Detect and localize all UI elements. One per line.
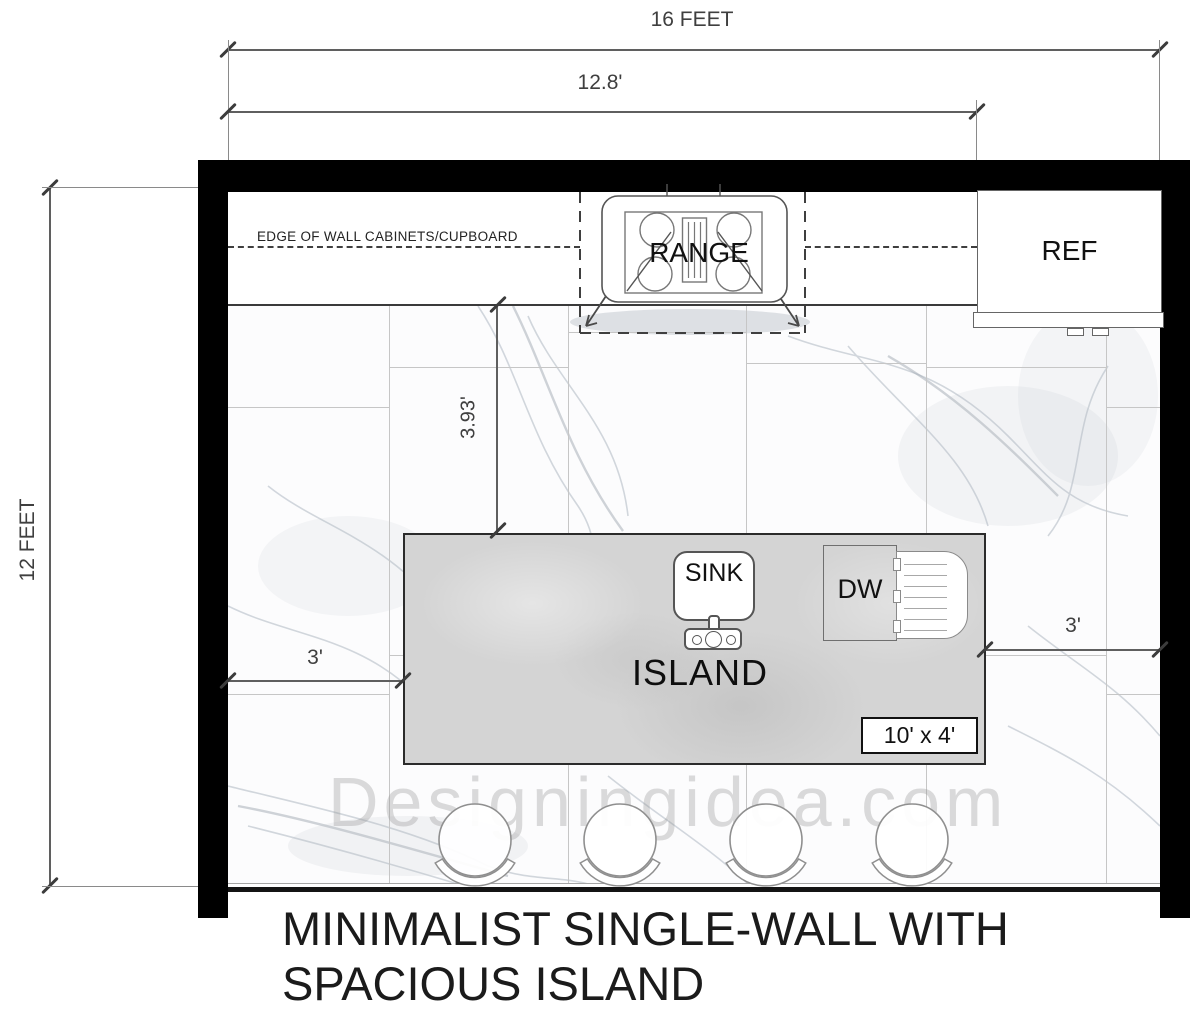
plan-title-line2: SPACIOUS ISLAND — [282, 956, 704, 1011]
tile-joint — [1106, 694, 1160, 695]
tile-joint — [1106, 407, 1160, 408]
dim-counter-island-line — [496, 306, 498, 533]
bar-stool — [570, 796, 670, 897]
extension-line — [1159, 40, 1160, 160]
extension-line — [42, 886, 198, 887]
tile-joint — [1106, 306, 1107, 884]
faucet-knob — [726, 635, 736, 645]
dim-counter-run-line — [228, 111, 977, 113]
range-label: RANGE — [614, 237, 784, 269]
tile-joint — [228, 694, 389, 695]
faucet-base — [705, 631, 722, 648]
left-wall — [198, 160, 228, 918]
cabinet-edge-dashed-line — [228, 246, 580, 248]
dim-counter-island-label: 3.93' — [458, 368, 481, 468]
dim-total-width-label: 16 FEET — [592, 8, 792, 32]
sink-label: SINK — [675, 559, 753, 588]
sink: SINK — [673, 551, 755, 621]
dishwasher: DW — [823, 545, 897, 641]
dim-total-width-line — [228, 49, 1160, 51]
bar-stool — [862, 796, 962, 897]
plan-title-line1: MINIMALIST SINGLE-WALL WITH — [282, 901, 1009, 956]
refrigerator: REF — [977, 190, 1162, 315]
island-size-label: 10' x 4' — [863, 719, 976, 752]
dim-left-clearance-label: 3' — [275, 646, 355, 670]
faucet — [684, 628, 742, 650]
drainboard-sink — [896, 551, 968, 639]
floor-edge — [228, 883, 1160, 884]
extension-line — [42, 187, 198, 188]
refrigerator-handle — [1092, 328, 1109, 336]
dim-total-depth-line — [49, 188, 51, 886]
bar-stool — [716, 796, 816, 897]
faucet-knob — [692, 635, 702, 645]
extension-line — [228, 40, 229, 160]
cabinet-edge-dashed-line — [805, 246, 977, 248]
cabinet-edge-label: EDGE OF WALL CABINETS/CUPBOARD — [257, 229, 518, 244]
dishwasher-label: DW — [824, 574, 896, 605]
refrigerator-label: REF — [978, 235, 1161, 267]
right-wall — [1160, 160, 1190, 918]
refrigerator-handle — [1067, 328, 1084, 336]
dim-right-clearance-label: 3' — [1033, 614, 1113, 638]
refrigerator-door — [973, 312, 1164, 328]
floor-plan: 16 FEET 12.8' 12 FEET — [0, 0, 1200, 1016]
floor-edge — [228, 887, 1160, 892]
tile-joint — [228, 407, 389, 408]
bar-stool — [425, 796, 525, 897]
island-label: ISLAND — [560, 652, 840, 694]
dim-counter-run-label: 12.8' — [500, 71, 700, 95]
dim-left-clearance-line — [228, 680, 403, 682]
island-size-box: 10' x 4' — [861, 717, 978, 754]
dim-total-depth-label: 12 FEET — [16, 480, 40, 600]
tile-joint — [746, 363, 926, 364]
tile-joint — [926, 367, 1106, 368]
dim-right-clearance-line — [984, 649, 1160, 651]
